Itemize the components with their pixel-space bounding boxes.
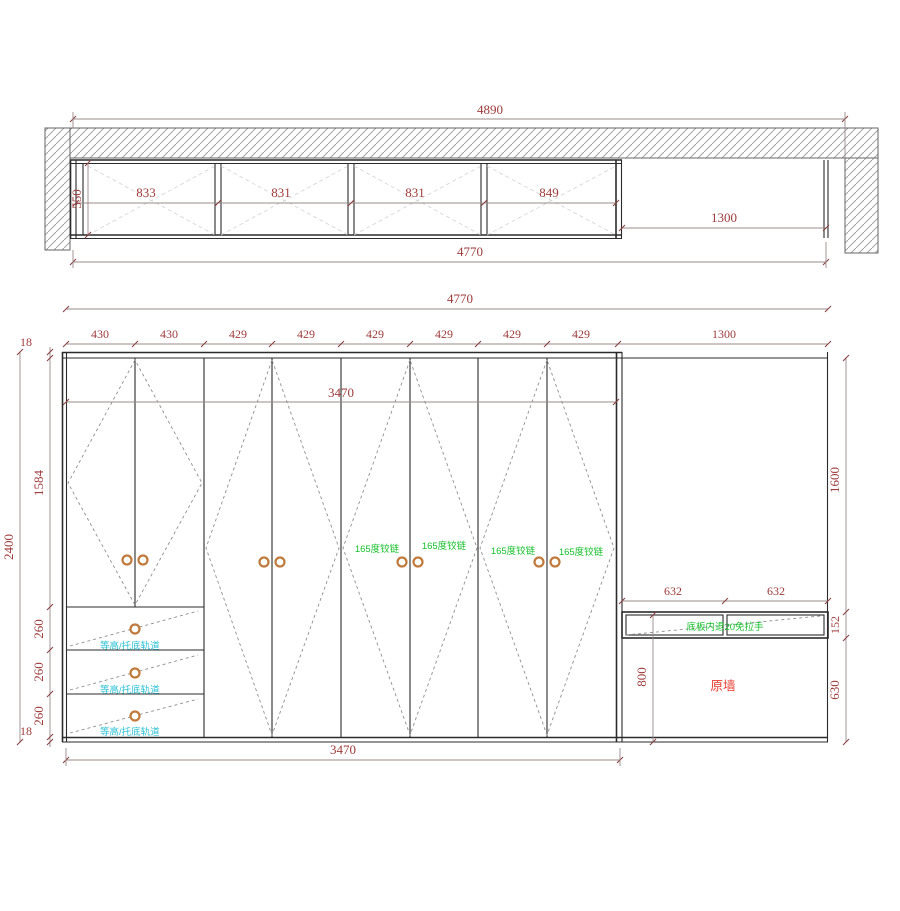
elev-door-dividers [135,358,547,737]
niche-lower-height-label: 630 [827,680,842,700]
plan-overall-width-label: 4890 [477,102,503,117]
hinge-label-3: 165度铰链 [491,545,536,557]
door-section-height-label: 1584 [31,470,46,497]
niche-drawer-width-2: 632 [767,584,785,598]
plan-compartment-2-label: 831 [271,185,291,200]
plan-inner-width-label: 4770 [457,244,483,259]
elev-dim-body-bottom: 3470 [63,742,623,766]
plan-compartment-3-label: 831 [405,185,425,200]
door-width-5: 429 [366,327,384,341]
hinge-labels: 165度铰链 165度铰链 165度铰链 165度铰链 [355,540,604,558]
door-width-1: 430 [91,327,109,341]
plan-dim-niche: 1300 [619,210,829,231]
knob-icon [414,558,423,567]
knob-icon [535,558,544,567]
elev-niche-width-label: 1300 [712,327,736,341]
hinge-label-1: 165度铰链 [355,543,400,555]
wall-hatch-left [45,128,70,250]
plan-compartment-diagonals [88,166,616,235]
elev-dim-doors: 430 430 429 429 429 429 429 429 1300 [63,327,831,347]
drawer-knob-icon [131,712,140,721]
elev-right-dims: 1600 152 630 [827,355,849,745]
elev-body-width-top-label: 3470 [328,385,354,400]
knob-icon [398,558,407,567]
elevation-view: 4770 430 430 429 429 429 429 429 429 130… [1,291,849,766]
door-width-8: 429 [572,327,590,341]
plan-view: 4890 833 831 831 849 550 1300 [45,102,878,268]
drawer-height-3: 260 [31,706,46,726]
plan-depth-label: 550 [69,189,84,209]
wall-hatch-top [45,128,878,158]
elev-dim-body-top: 3470 [63,385,619,405]
hinge-label-4: 165度铰链 [559,546,604,558]
wardrobe-cad-drawing: 4890 833 831 831 849 550 1300 [0,0,900,911]
plan-compartment-1-label: 833 [136,185,156,200]
elev-left-dims: 2400 18 1584 260 260 260 18 [1,335,53,747]
door-width-6: 429 [435,327,453,341]
cad-canvas: 4890 833 831 831 849 550 1300 [0,0,900,911]
bottom-panel-thickness-label: 18 [20,724,32,738]
original-wall-label: 原墙 [710,679,735,693]
top-panel-thickness-label: 18 [20,335,32,349]
niche-upper-height-label: 1600 [827,467,842,493]
elev-dim-total: 4770 [63,291,831,312]
knob-icon [260,558,269,567]
drawer-knob-icon [131,669,140,678]
elev-body-width-bottom-label: 3470 [330,742,356,757]
elev-total-width-label: 4770 [447,291,473,306]
door-width-4: 429 [297,327,315,341]
door-width-3: 429 [229,327,247,341]
knob-icon [123,556,132,565]
plan-compartment-4-label: 849 [539,185,559,200]
drawer-rail-label-2: 等高/托底轨道 [100,684,160,696]
elev-total-height-label: 2400 [1,534,16,560]
door-width-7: 429 [503,327,521,341]
hinge-label-2: 165度铰链 [422,540,467,552]
plan-niche-width-label: 1300 [711,210,737,225]
knob-icon [276,558,285,567]
niche-drawer-offset-label: 800 [634,667,649,687]
door-width-2: 430 [160,327,178,341]
niche-note-label: 底板内退20免拉手 [686,621,764,633]
knob-icon [551,558,560,567]
drawer-height-2: 260 [31,662,46,682]
drawer-rail-label-1: 等高/托底轨道 [100,640,160,652]
plan-dim-inner: 4770 [70,242,829,268]
niche-area: 632 632 底板内退20免拉手 原墙 800 [619,584,831,745]
niche-drawer-height-label: 152 [828,616,842,634]
niche-drawer-width-1: 632 [664,584,682,598]
drawer-stack: 等高/托底轨道 等高/托底轨道 等高/托底轨道 [66,607,204,738]
knob-icon [139,556,148,565]
wall-hatch-right [845,158,878,253]
drawer-rail-label-3: 等高/托底轨道 [100,726,160,738]
drawer-knob-icon [131,625,140,634]
plan-dim-compartments: 833 831 831 849 [73,185,619,206]
plan-dim-depth: 550 [69,160,91,238]
drawer-height-1: 260 [31,619,46,639]
plan-cabinet-body [70,160,828,239]
